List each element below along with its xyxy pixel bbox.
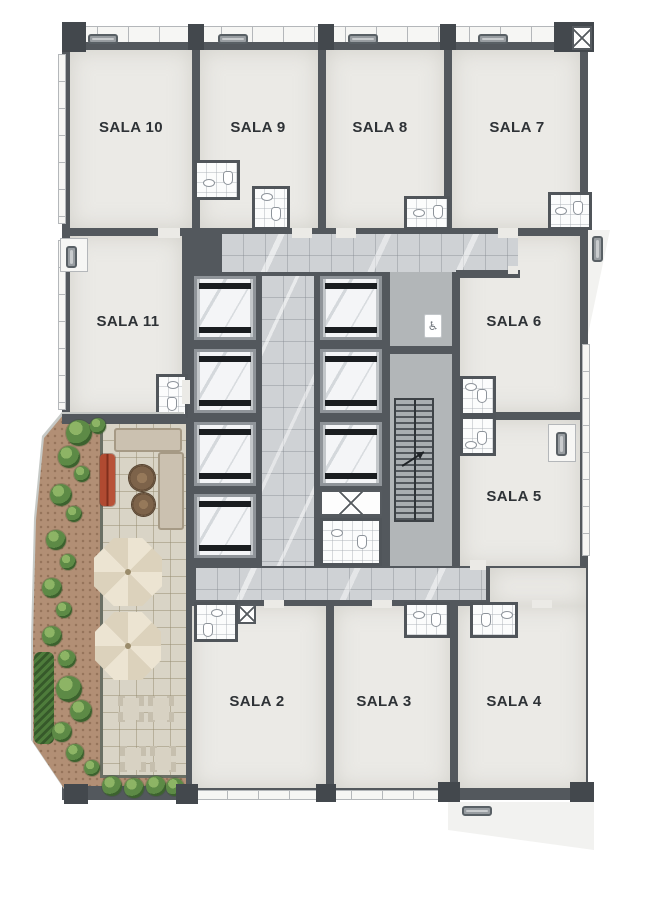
corridor-center [262,276,314,566]
door-sala-5 [470,560,486,570]
sink-icon [465,383,477,391]
pillar [440,24,456,50]
ac-unit [66,246,77,268]
elevator [194,349,256,413]
sink-icon [413,611,425,619]
dining-set [120,744,146,774]
toilet-icon [431,613,441,627]
pillar [188,24,204,50]
pillar [62,22,86,52]
room-label-sala-9: SALA 9 [210,119,306,136]
windows-right [582,344,590,556]
door-sala-4 [532,600,552,608]
bush [42,578,62,598]
service-shaft [320,490,382,516]
bathroom-sala-6 [460,376,496,416]
pillar [570,782,594,802]
door-sala-3 [372,600,392,608]
door-sala-6 [508,266,518,274]
sink-icon [261,193,273,201]
floor-plan: ♿ [0,0,659,900]
sink-icon [501,611,513,619]
toilet-icon [573,201,583,215]
bush [74,466,90,482]
dining-set [118,694,144,724]
room-label-sala-5: SALA 5 [466,488,562,505]
sink-icon [203,179,215,187]
room-label-sala-3: SALA 3 [336,693,432,710]
bathroom-sala-2 [194,602,238,642]
door-sala-9 [292,228,312,238]
room-label-sala-10: SALA 10 [83,119,179,136]
door-sala-2 [264,600,284,608]
elevator [194,494,256,558]
elevator [320,349,382,413]
toilet-icon [477,389,487,403]
ac-unit [88,34,118,44]
shaft-sala-2 [238,604,256,624]
sink-icon [413,209,425,217]
bush [56,676,82,702]
pillar [64,784,88,804]
bush [70,700,92,722]
door-sala-11 [182,380,190,404]
stairs [394,398,434,522]
hedge-bush [124,778,144,798]
bush [50,484,72,506]
room-sala-10 [70,50,192,228]
sink-icon [465,441,477,449]
wall-accessible-wc [390,346,452,354]
bush [66,744,84,762]
room-label-sala-6: SALA 6 [466,313,562,330]
toilet-icon [481,613,491,627]
coffee-table [132,493,155,516]
pillar [318,24,334,50]
room-label-sala-2: SALA 2 [209,693,305,710]
bush [58,650,76,668]
room-label-sala-8: SALA 8 [332,119,428,136]
pillar [438,782,460,802]
hedge-bush [146,776,166,796]
wheelchair-icon: ♿ [428,319,439,333]
shaft-top-right [572,26,592,50]
elevator [320,276,382,340]
dining-set [150,744,176,774]
elevator [194,276,256,340]
bush [58,446,80,468]
elevator [320,422,382,486]
corridor-bottom [196,568,486,600]
coffee-table [129,465,155,491]
toilet-icon [477,431,487,445]
corridor-top [222,234,518,272]
bush [66,506,82,522]
bathroom-sala-5 [460,416,496,456]
umbrella [95,612,161,680]
hedge-bush [102,776,122,796]
sink-icon [555,207,567,215]
room-label-sala-7: SALA 7 [469,119,565,136]
room-label-sala-4: SALA 4 [466,693,562,710]
core-wc [320,518,382,566]
bush [60,554,76,570]
chaise-longue [100,454,115,506]
sink-icon [331,529,343,537]
bathroom-sala-3 [404,602,450,638]
door-sala-8 [336,228,356,238]
bathroom-sala-7 [548,192,592,230]
door-sala-7 [498,228,518,238]
door-sala-10 [158,228,180,238]
bush [56,602,72,618]
toilet-icon [203,623,213,637]
toilet-icon [357,535,367,549]
sink-icon [211,609,223,617]
bush [66,420,92,446]
pillar [176,784,198,804]
bathroom-sala-10 [194,160,240,200]
ground-cover-bed [34,652,54,744]
sink-icon [167,381,179,389]
dining-set [148,694,174,724]
toilet-icon [271,207,281,221]
ac-unit [462,806,492,816]
ac-unit [348,34,378,44]
bathroom-sala-9 [252,186,290,230]
sofa-horizontal [114,428,182,452]
toilet-icon [433,205,443,219]
ac-unit [592,236,603,262]
bathroom-sala-4 [470,602,518,638]
bush [46,530,66,550]
bathroom-sala-8 [404,196,450,230]
elevator [194,422,256,486]
bush [42,626,62,646]
pillar [316,784,336,802]
bush [52,722,72,742]
umbrella [94,538,162,606]
room-label-sala-11: SALA 11 [80,313,176,330]
toilet-icon [223,171,233,185]
toilet-icon [167,397,177,411]
accessible-wc-sign: ♿ [424,314,442,338]
ac-unit [218,34,248,44]
bush [90,418,106,434]
sofa-vertical [158,452,184,530]
ac-unit [478,34,508,44]
bush [84,760,100,776]
ac-unit [556,432,567,456]
windows-left-top [58,54,66,224]
